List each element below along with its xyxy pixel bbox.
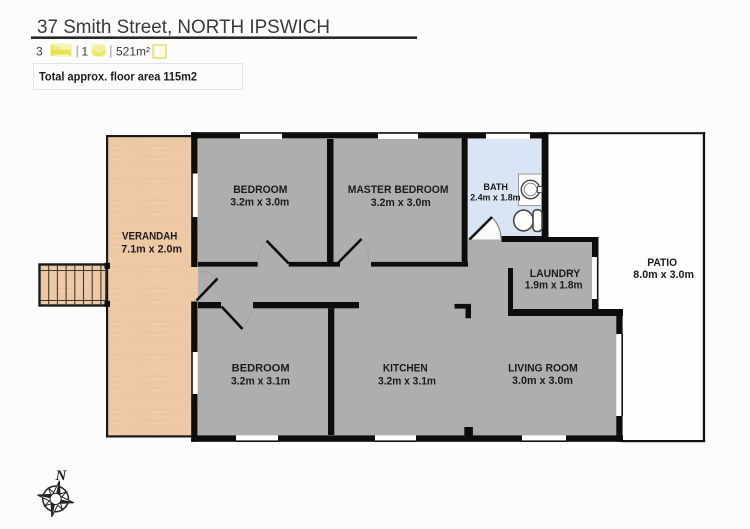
svg-text:3.2m x 3.0m: 3.2m x 3.0m: [371, 197, 431, 209]
svg-text:1: 1: [82, 45, 89, 59]
svg-text:BEDROOM: BEDROOM: [233, 184, 287, 196]
svg-text:KITCHEN: KITCHEN: [383, 363, 428, 375]
svg-text:2.4m x 1.8m: 2.4m x 1.8m: [470, 192, 520, 203]
svg-text:37 Smith Street, NORTH IPSWICH: 37 Smith Street, NORTH IPSWICH: [37, 16, 330, 38]
svg-text:3.0m x 3.0m: 3.0m x 3.0m: [512, 375, 573, 387]
svg-text:N: N: [55, 468, 68, 484]
svg-text:8.0m x 3.0m: 8.0m x 3.0m: [633, 269, 694, 281]
svg-text:VERANDAH: VERANDAH: [122, 231, 177, 243]
svg-text:PATIO: PATIO: [647, 257, 677, 269]
svg-text:521m²: 521m²: [116, 45, 150, 59]
svg-text:LIVING ROOM: LIVING ROOM: [508, 363, 578, 375]
svg-text:3.2m x 3.1m: 3.2m x 3.1m: [231, 376, 290, 388]
svg-text:1.9m x 1.8m: 1.9m x 1.8m: [525, 279, 583, 291]
svg-text:3: 3: [36, 45, 43, 59]
svg-text:3.2m x 3.1m: 3.2m x 3.1m: [378, 375, 436, 387]
svg-text:BEDROOM: BEDROOM: [232, 362, 290, 374]
svg-text:3.2m x 3.0m: 3.2m x 3.0m: [230, 196, 289, 208]
svg-text:MASTER BEDROOM: MASTER BEDROOM: [348, 184, 449, 196]
svg-text:7.1m x 2.0m: 7.1m x 2.0m: [121, 243, 182, 255]
svg-text:Total approx. floor area 115m2: Total approx. floor area 115m2: [39, 70, 197, 84]
